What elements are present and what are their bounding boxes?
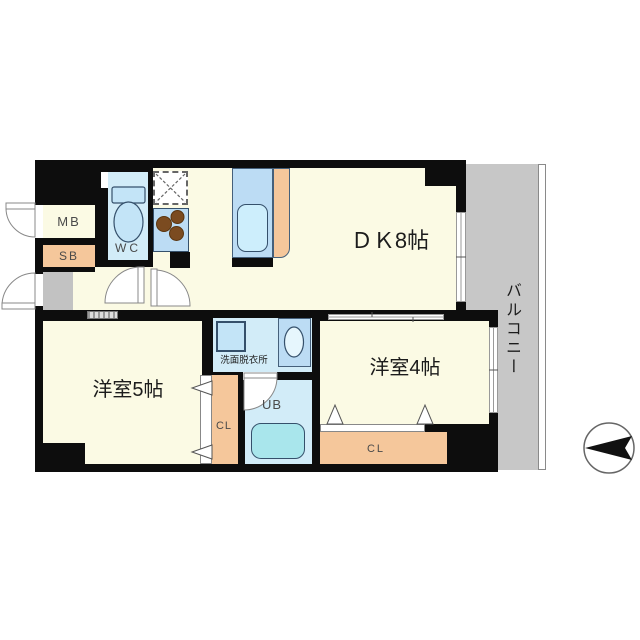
closet-west5-label: CL — [209, 419, 239, 432]
unit-bath-label: UB — [252, 397, 292, 411]
toilet-icon — [112, 187, 145, 242]
entrance-door-arc — [2, 273, 35, 309]
western5-room-label: 洋室5帖 — [58, 374, 198, 400]
dk-hall-door-arc — [151, 269, 190, 306]
stove-burners-icon — [157, 211, 185, 241]
wc-label: WC — [108, 241, 148, 255]
shoe-box-label: SB — [43, 249, 95, 263]
washroom-label: 洗面脱衣所 — [211, 353, 277, 365]
closet-west4-label: CL — [358, 442, 394, 455]
western4-room-label: 洋室4帖 — [340, 352, 470, 378]
dk-room-label: ＤＫ8帖 — [330, 226, 450, 252]
refrigerator-cross-icon — [156, 174, 185, 202]
meter-box-label: MB — [43, 214, 95, 228]
wc-door-arc — [105, 267, 144, 303]
floor-plan-canvas: ＤＫ8帖 洋室5帖 洋室4帖 バルコニー WC MB SB 洗面脱衣所 UB C… — [0, 0, 640, 640]
compass-north-icon — [584, 423, 634, 473]
wash-basin-icon — [285, 327, 304, 357]
meter-box-door-arc — [6, 203, 35, 237]
balcony-label: バルコニー — [500, 272, 522, 387]
plan-symbols-layer — [0, 0, 640, 640]
